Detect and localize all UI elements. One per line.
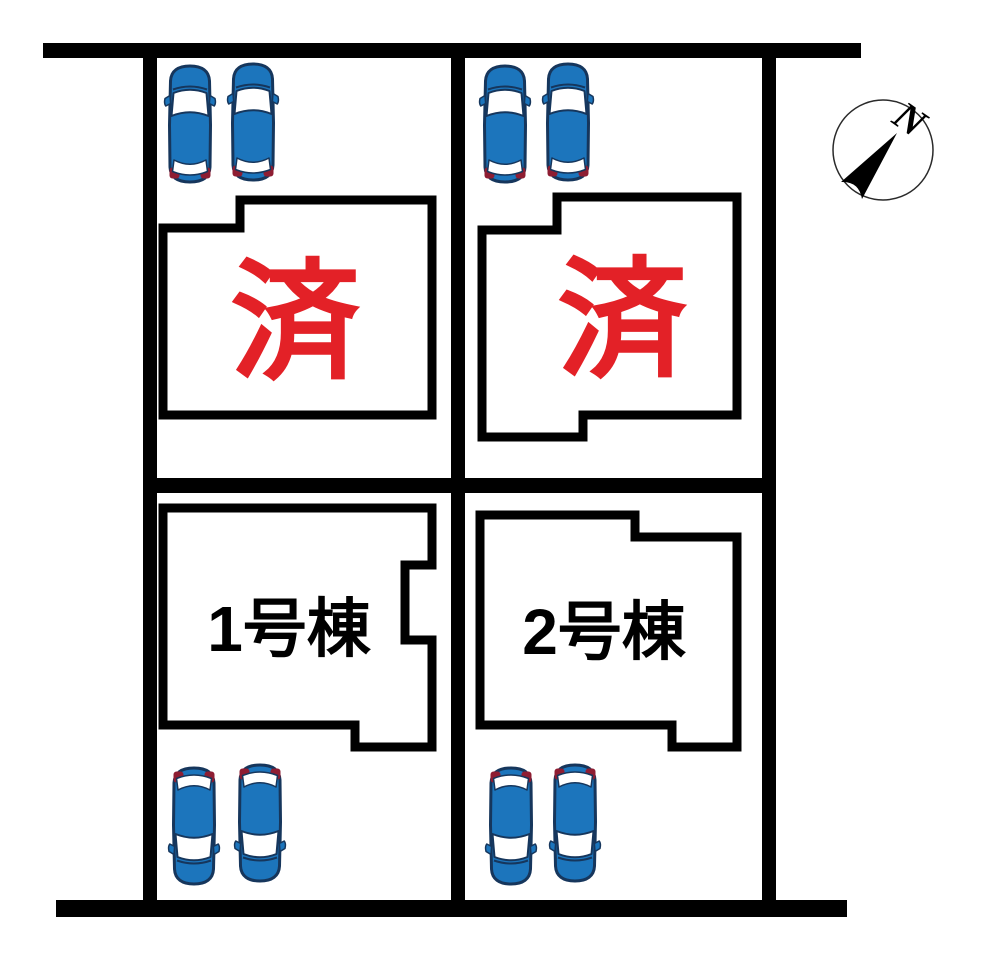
car-icon — [169, 768, 220, 884]
car-icon — [486, 768, 537, 884]
compass-icon: N — [833, 92, 936, 200]
lot-bottom-left: 1号棟 — [163, 508, 432, 884]
boundary-middle — [451, 45, 465, 905]
car-icon — [480, 66, 531, 182]
car-icon — [235, 765, 286, 881]
car-icon — [543, 64, 594, 180]
boundary-right — [762, 45, 776, 905]
lot-name-bottom-right: 2号棟 — [522, 596, 687, 668]
car-icon — [165, 66, 216, 182]
car-icon — [228, 64, 279, 180]
lot-status-top-left: 済 — [230, 249, 361, 395]
boundary-left — [143, 45, 157, 905]
divider-horizontal — [143, 478, 776, 493]
site-plan: 済 済 1号棟 2号棟 N — [0, 0, 1002, 960]
lot-top-right: 済 — [480, 64, 737, 437]
roads-and-boundaries — [43, 43, 861, 917]
lot-bottom-right: 2号棟 — [480, 515, 737, 884]
site-plan-canvas: 済 済 1号棟 2号棟 N — [0, 0, 1002, 960]
lot-top-left: 済 — [163, 64, 432, 415]
lot-name-bottom-left: 1号棟 — [207, 593, 372, 665]
lot-status-top-right: 済 — [557, 247, 688, 393]
car-icon — [550, 765, 601, 881]
